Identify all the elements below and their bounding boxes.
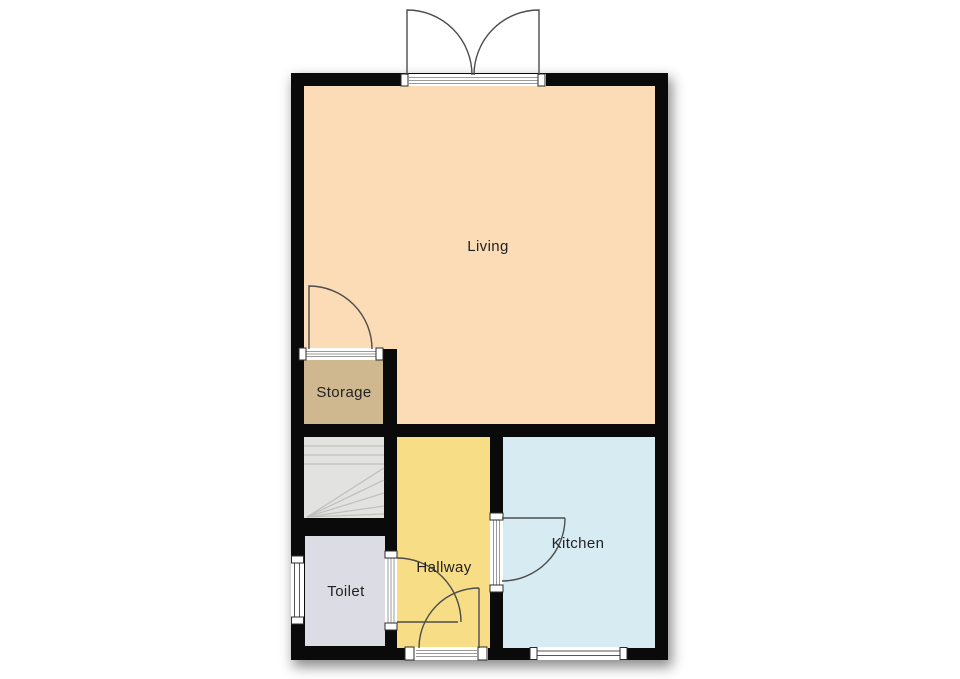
room-label-storage: Storage	[316, 384, 371, 401]
kitchen-door-frame	[490, 513, 503, 592]
floorplan-canvas: Living Storage Toilet Hallway Kitchen	[0, 0, 960, 679]
room-label-living: Living	[467, 238, 509, 255]
room-label-hallway: Hallway	[416, 559, 471, 576]
toilet-window	[291, 556, 304, 624]
toilet-door-frame	[385, 551, 397, 630]
entrance-door-right-leaf	[474, 10, 539, 75]
entrance-door-left-leaf	[407, 10, 472, 75]
hallway-floor	[397, 437, 490, 648]
storage-door-threshold	[299, 348, 383, 360]
floorplan-drawing	[0, 0, 960, 679]
room-label-toilet: Toilet	[327, 583, 364, 600]
room-label-kitchen: Kitchen	[552, 535, 605, 552]
kitchen-window	[530, 647, 627, 660]
front-door-threshold	[405, 647, 488, 660]
entrance-threshold	[401, 74, 546, 86]
